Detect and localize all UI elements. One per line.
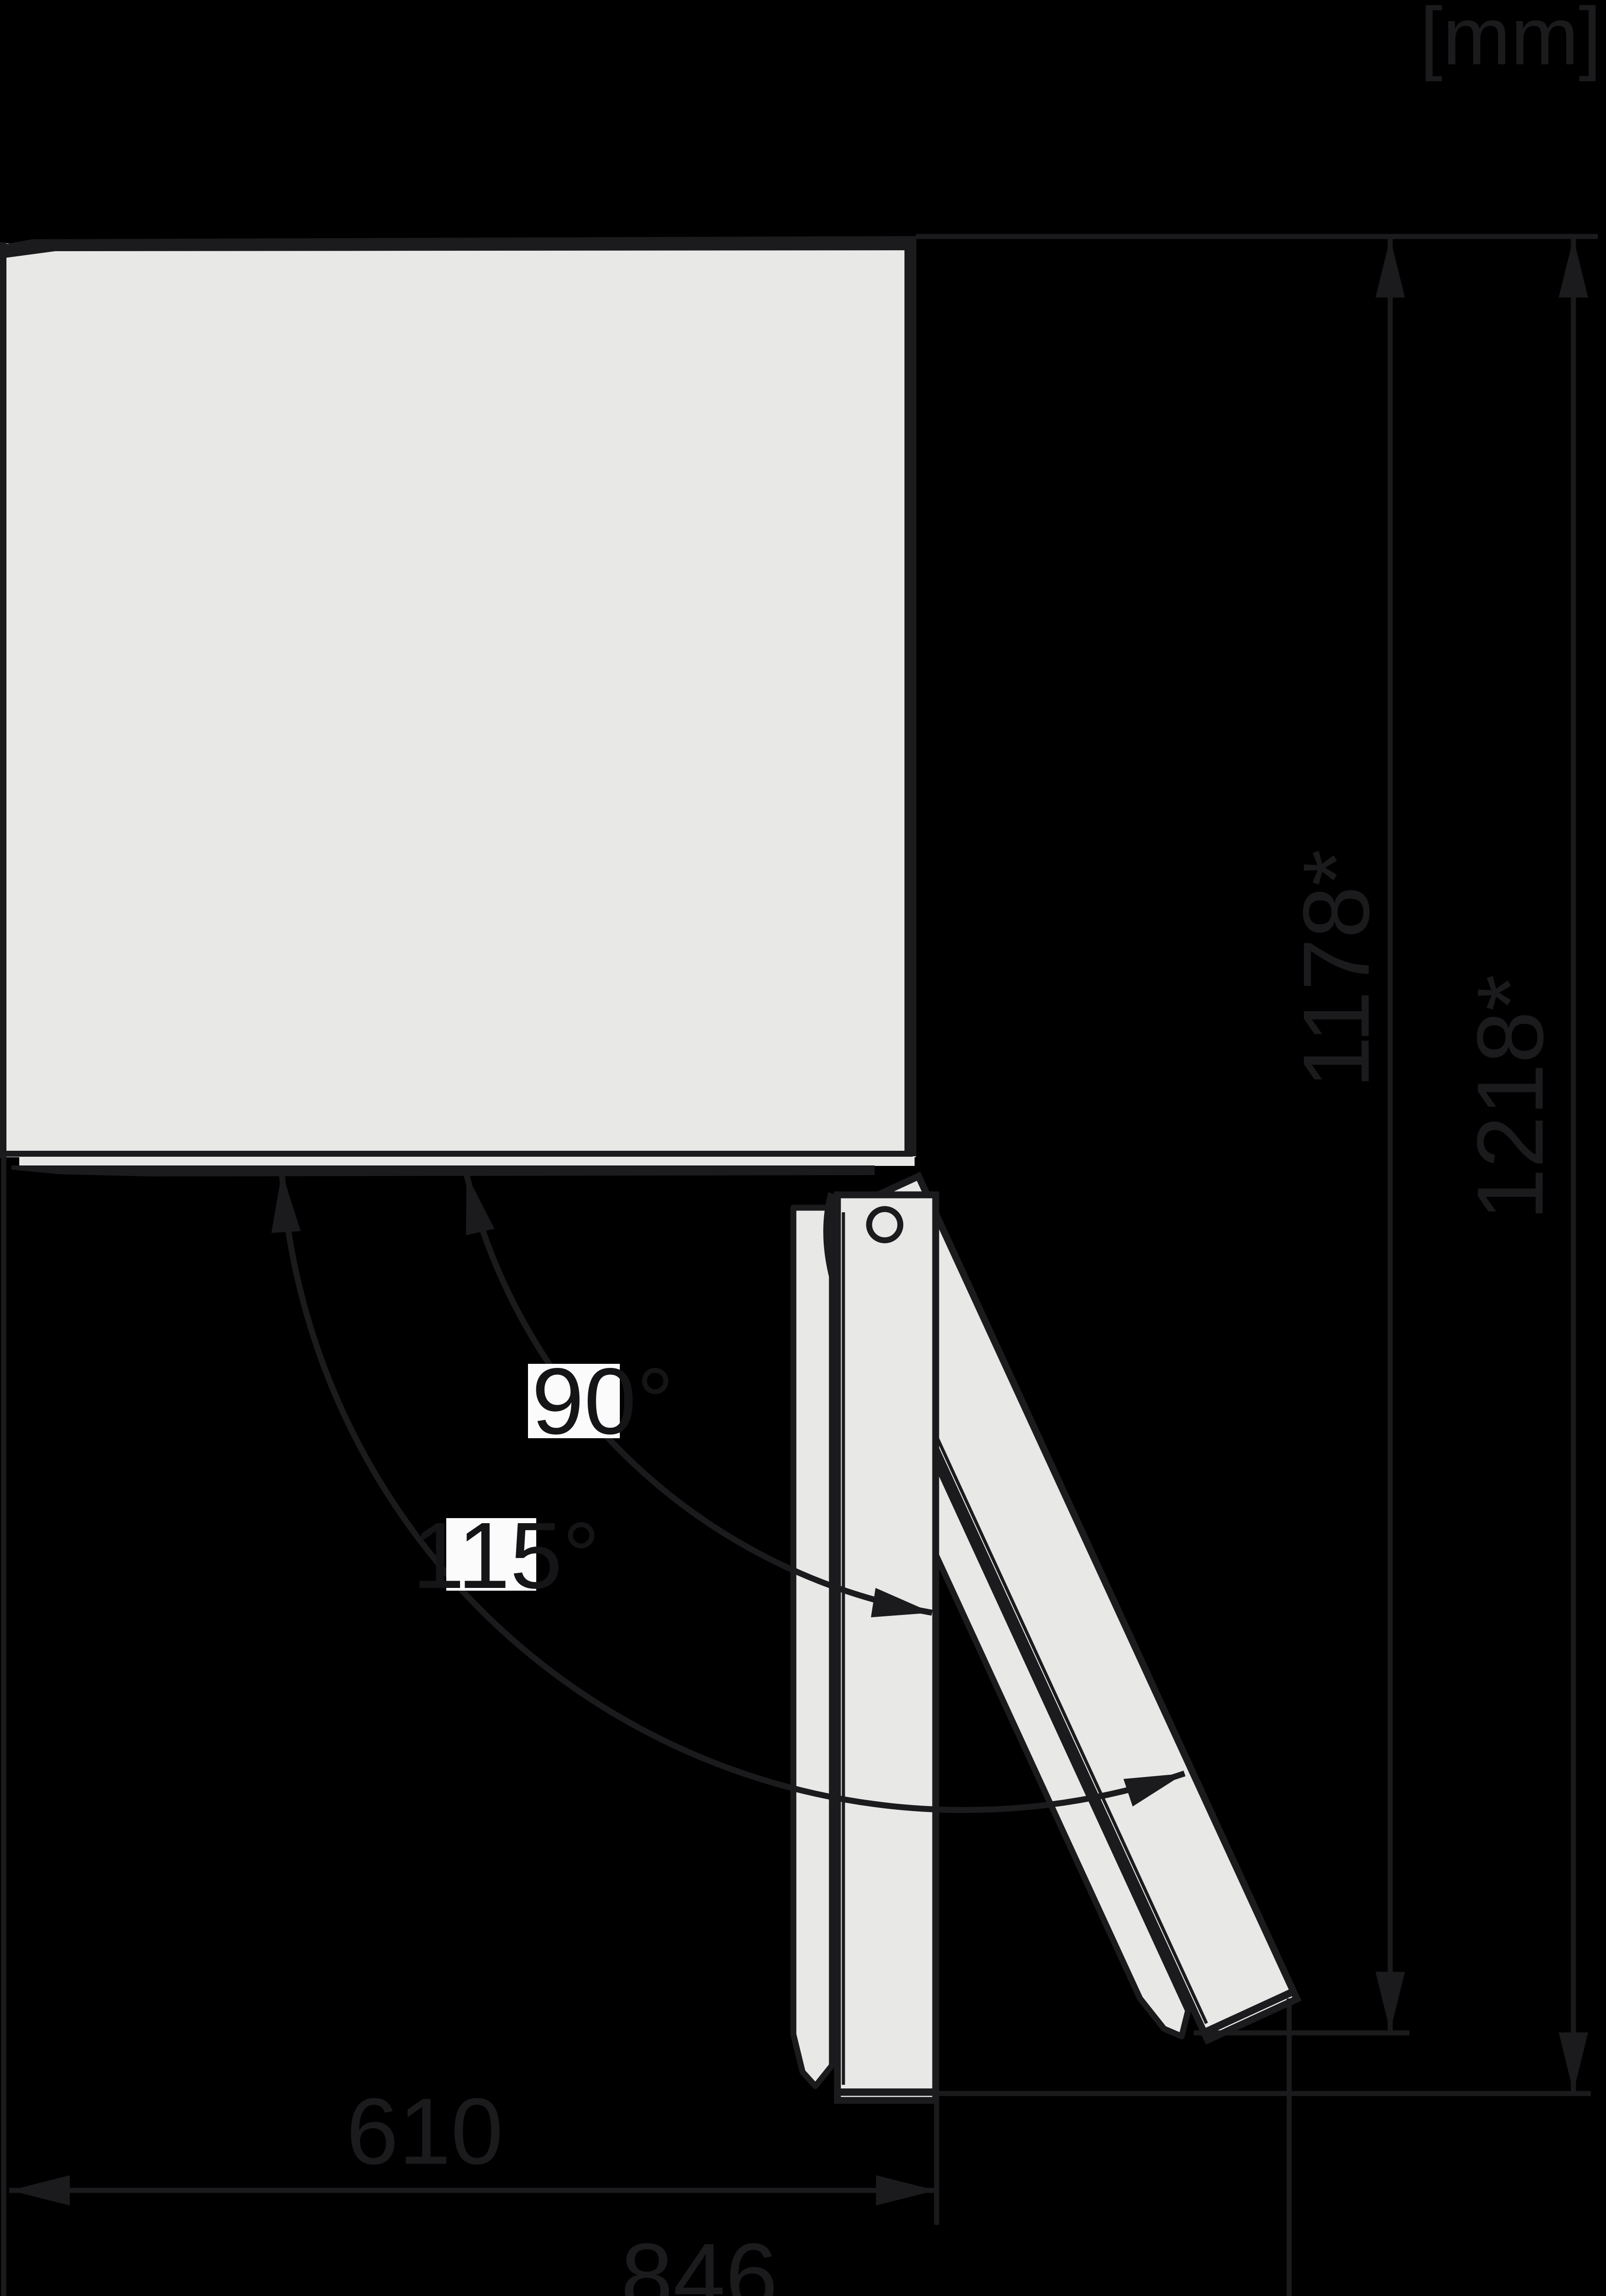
cabinet-top-view (0, 236, 916, 1176)
dimension-1218-label: 1218* (1458, 974, 1563, 1221)
cabinet-body (4, 243, 916, 1157)
angle-115-label: 115° (412, 1503, 600, 1608)
cabinet-front-strip (19, 1157, 915, 1166)
cabinet-left-edge (0, 242, 6, 1158)
cabinet-bottom-edge (4, 1151, 913, 1157)
angle-label-90: 90° (528, 1349, 674, 1454)
unit-label: [mm] (1420, 0, 1601, 82)
cabinet-front-band (11, 1165, 875, 1176)
diagram-page: 90° 115° 1178* 1218* 610 846 [mm] (0, 0, 1606, 2296)
angle-label-115: 115° (412, 1503, 600, 1608)
dimension-610-label: 610 (346, 2079, 503, 2184)
installation-diagram: 90° 115° 1178* 1218* 610 846 [mm] (0, 0, 1606, 2296)
door-open-90 (793, 1195, 936, 2100)
cabinet-right-edge (904, 237, 916, 1156)
dimension-1178-label: 1178* (1284, 850, 1389, 1089)
dimension-846-label: 846 (621, 2224, 778, 2296)
angle-90-label: 90° (532, 1349, 674, 1454)
hinge-pin-icon (869, 1209, 900, 1240)
